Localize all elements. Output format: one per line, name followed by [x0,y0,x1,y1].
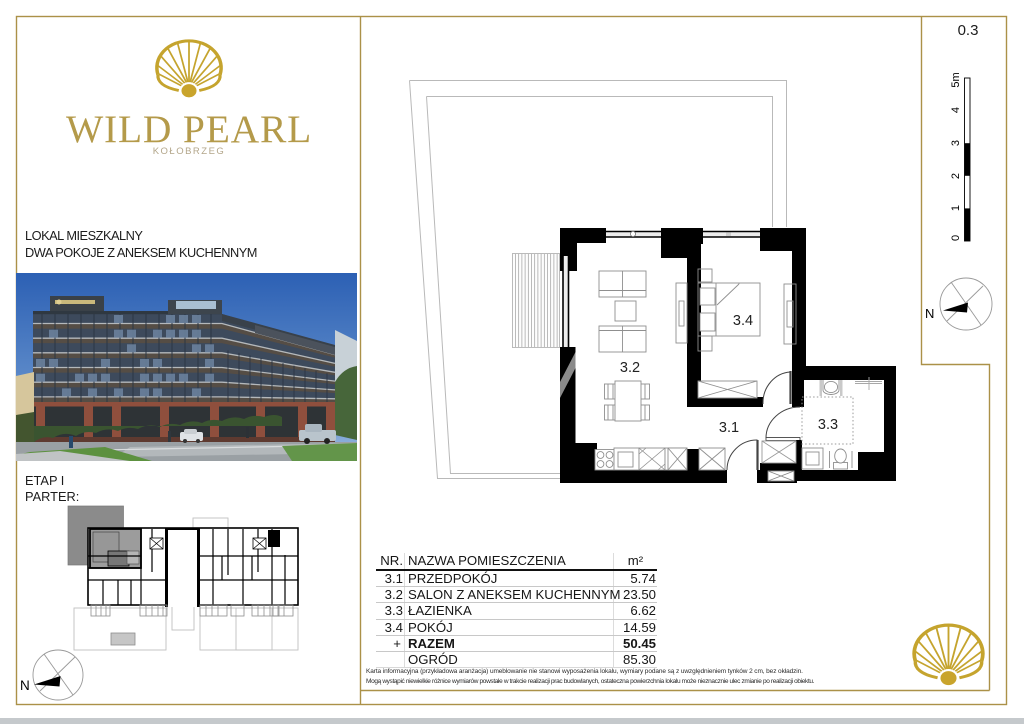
svg-text:4: 4 [950,107,962,113]
svg-text:1: 1 [950,205,962,211]
svg-text:N: N [925,306,934,321]
svg-text:3.4: 3.4 [733,313,753,329]
svg-text:5m: 5m [950,72,962,87]
svg-text:N: N [20,678,30,693]
svg-text:0: 0 [950,235,962,241]
svg-text:2: 2 [950,173,962,179]
svg-text:3.1: 3.1 [719,420,739,436]
svg-text:3.3: 3.3 [818,417,838,433]
svg-text:3.2: 3.2 [620,360,640,376]
svg-text:3: 3 [950,140,962,146]
